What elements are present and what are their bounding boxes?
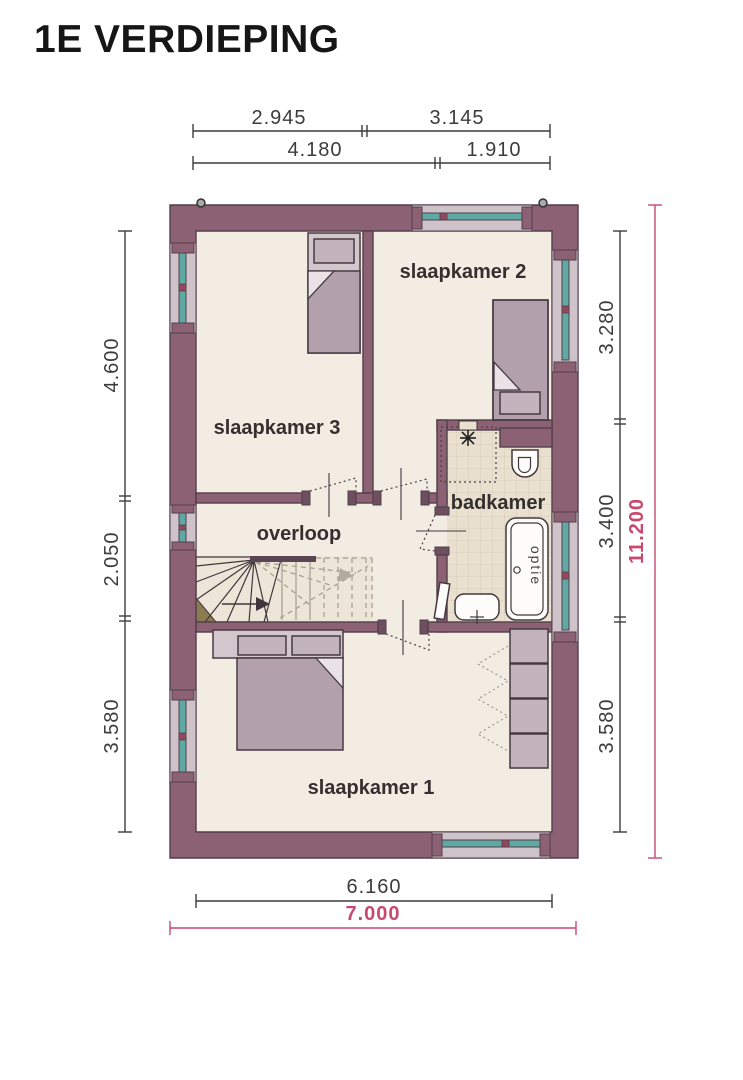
dim-label: 4.180 <box>287 139 342 161</box>
dim-label: 2.945 <box>251 107 306 129</box>
stairs-area <box>196 556 372 622</box>
window-right-badkamer <box>552 512 578 642</box>
dimension-bottom-total: 7.000 <box>170 903 576 935</box>
stairs <box>196 556 372 622</box>
dimension-top-row1: 2.945 3.145 <box>193 107 550 138</box>
downpipe-icon <box>539 199 547 207</box>
dimension-right-total: 11.200 <box>626 205 662 858</box>
window-left-slaapkamer3 <box>170 243 196 333</box>
room-label-slaapkamer-3: slaapkamer 3 <box>214 417 341 439</box>
window-left-slaapkamer1 <box>170 690 196 782</box>
dim-label-total-width: 7.000 <box>345 903 400 925</box>
dim-label: 2.050 <box>101 531 123 586</box>
dim-label: 3.400 <box>596 493 618 548</box>
stair-banister <box>250 556 316 562</box>
toilet-closet-block <box>500 428 552 447</box>
room-label-slaapkamer-2: slaapkamer 2 <box>400 261 527 283</box>
dim-label: 3.580 <box>596 698 618 753</box>
room-label-slaapkamer-1: slaapkamer 1 <box>308 777 435 799</box>
dim-label: 4.600 <box>101 337 123 392</box>
window-bottom-slaapkamer1 <box>432 832 550 858</box>
dim-label: 3.280 <box>596 299 618 354</box>
dim-label: 3.580 <box>101 698 123 753</box>
window-top-slaapkamer2 <box>412 205 532 231</box>
bathtub-drain <box>514 567 520 573</box>
dim-label-total-height: 11.200 <box>626 498 648 564</box>
bathtub-option-label: optie <box>528 546 544 586</box>
wall-sk3-sk2 <box>363 231 373 493</box>
toilet <box>512 450 538 477</box>
floor-plan-svg: optie slaapkamer 2 slaapkamer 3 overloop… <box>0 0 743 1080</box>
dim-label: 3.145 <box>429 107 484 129</box>
dimension-top-row2: 4.180 1.910 <box>193 139 550 170</box>
dim-label: 1.910 <box>466 139 521 161</box>
bed-slaapkamer2 <box>493 300 548 420</box>
dimension-right-inner: 3.280 3.400 3.580 <box>596 231 627 832</box>
room-label-overloop: overloop <box>257 523 341 545</box>
dim-label: 6.160 <box>346 876 401 898</box>
window-right-slaapkamer2 <box>552 250 578 372</box>
window-left-overloop <box>170 505 196 550</box>
bed-slaapkamer3 <box>308 233 360 353</box>
dimension-left: 4.600 2.050 3.580 <box>101 231 132 832</box>
sink <box>455 594 499 624</box>
downpipe-icon <box>197 199 205 207</box>
room-label-badkamer: badkamer <box>451 492 546 514</box>
bathtub: optie <box>506 518 548 620</box>
